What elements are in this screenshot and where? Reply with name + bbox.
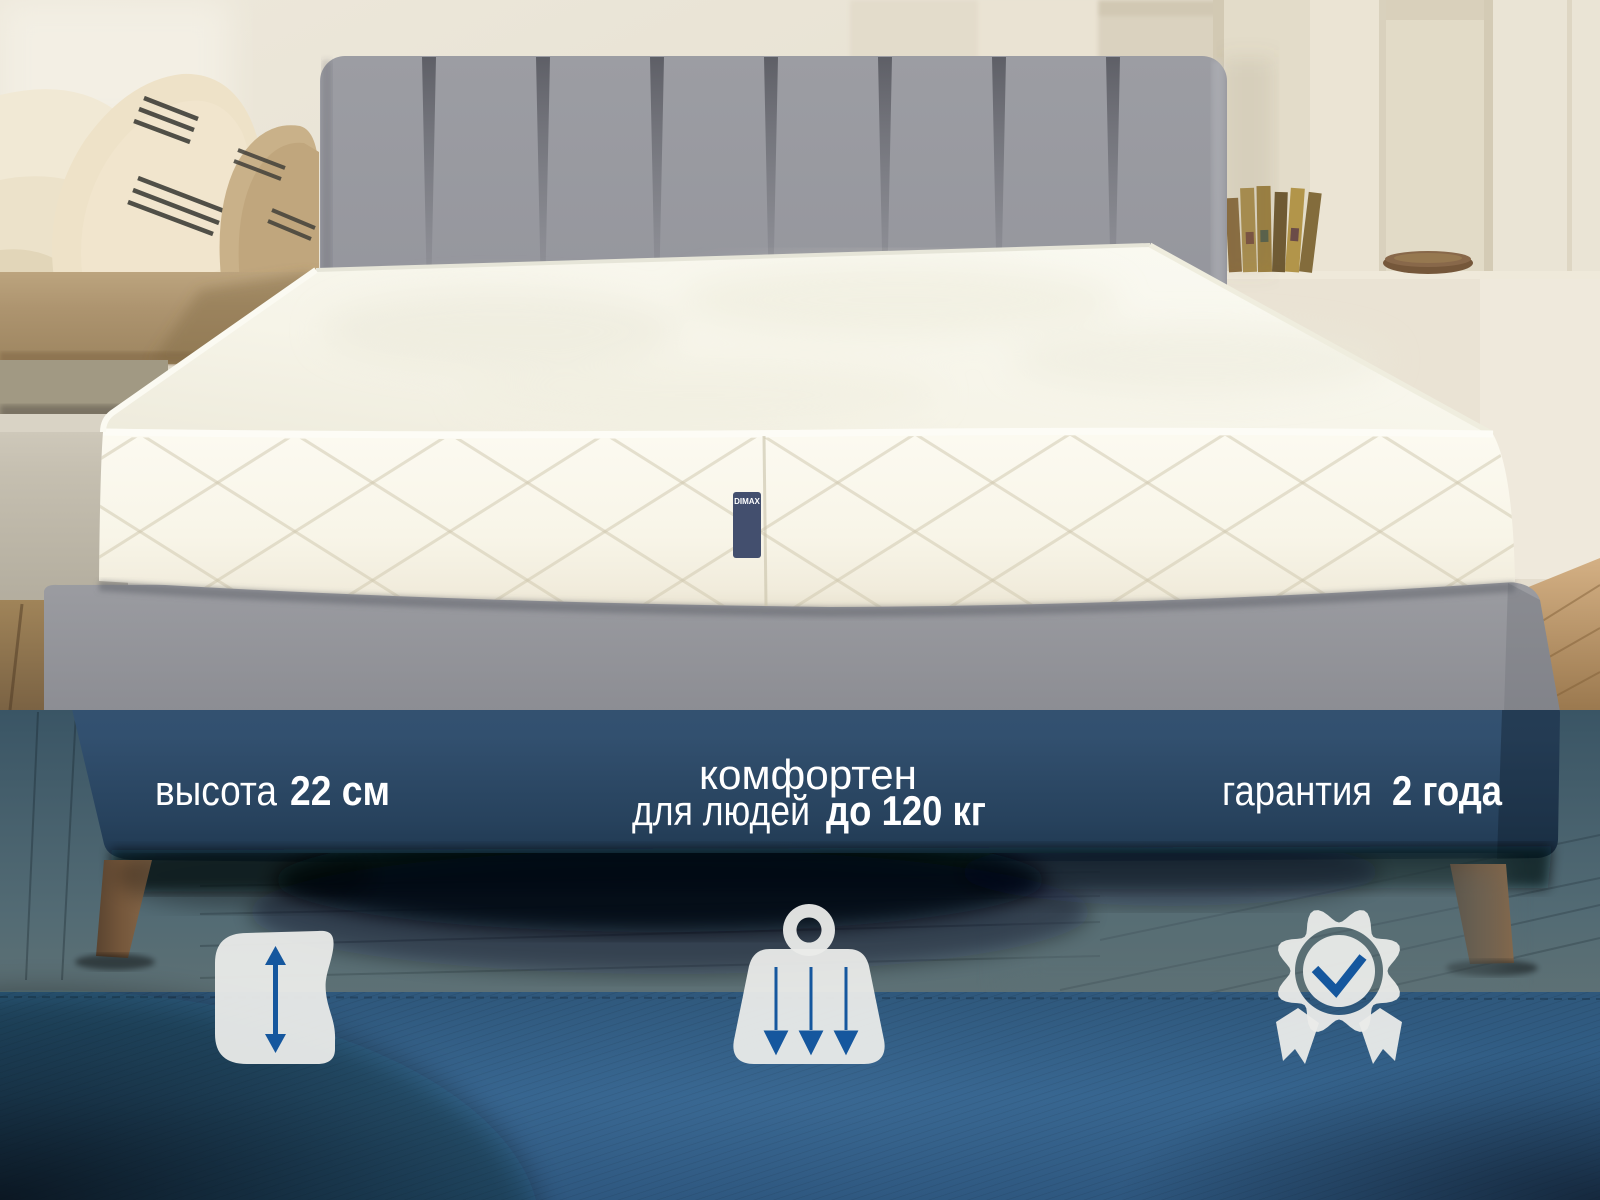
svg-text:2 года: 2 года (1392, 767, 1503, 814)
svg-text:гарантия: гарантия (1222, 767, 1372, 814)
svg-text:высота: высота (155, 767, 278, 814)
svg-text:DIMAX: DIMAX (734, 497, 760, 506)
svg-text:22 см: 22 см (290, 767, 390, 814)
svg-text:для людей: для людей (632, 787, 810, 834)
svg-text:до 120 кг: до 120 кг (826, 787, 986, 834)
